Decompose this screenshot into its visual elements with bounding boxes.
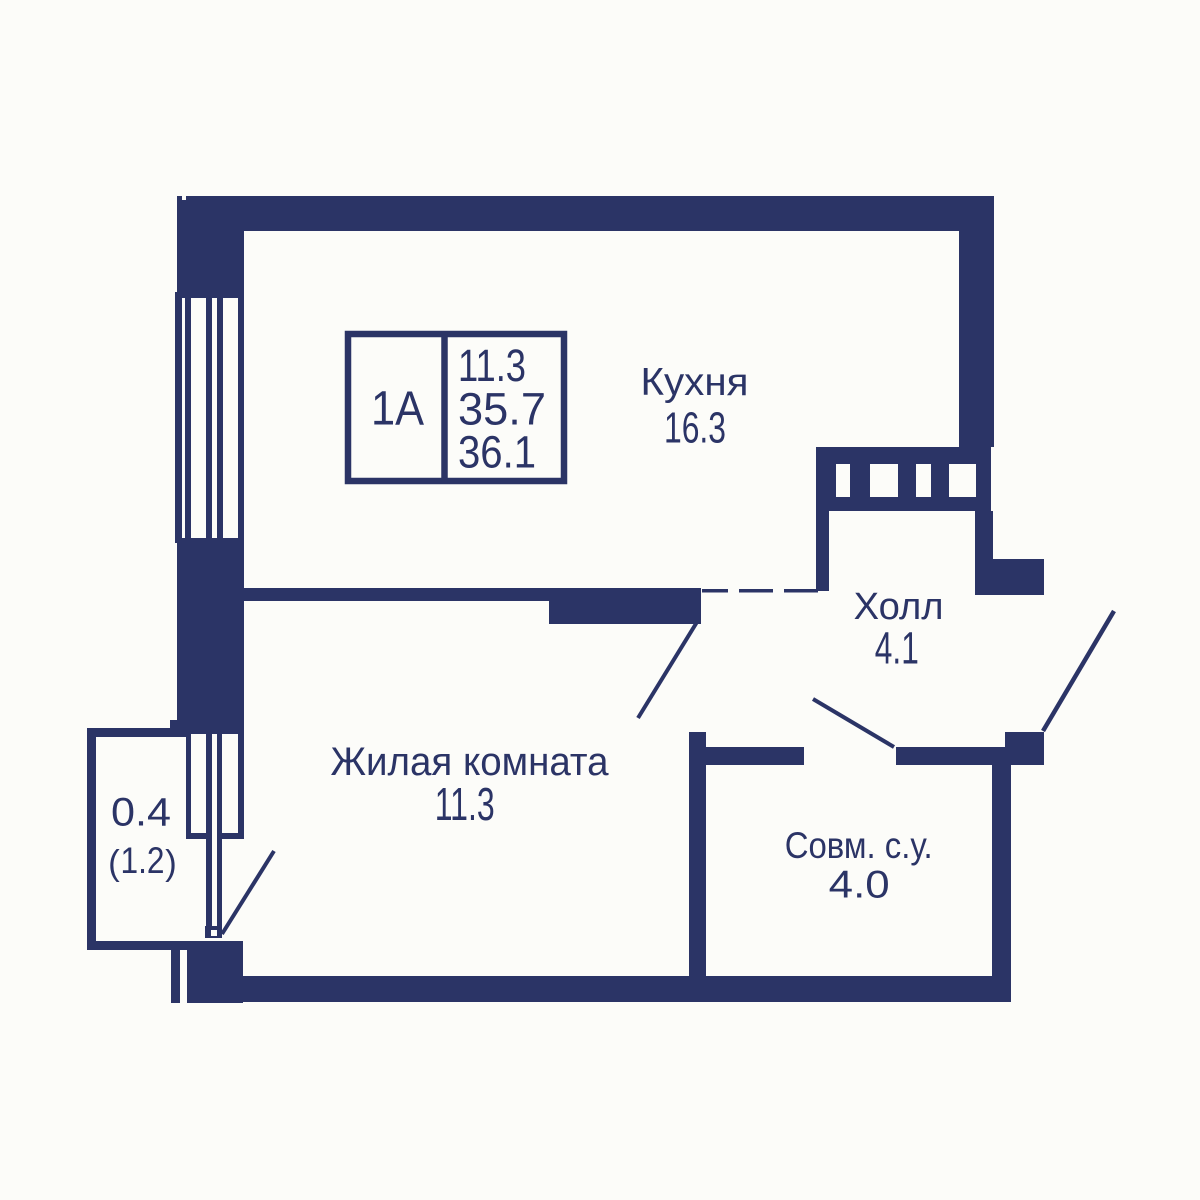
svg-text:4.0: 4.0	[829, 864, 890, 907]
svg-text:(: (	[108, 844, 120, 883]
svg-text:Кухня: Кухня	[641, 361, 749, 404]
svg-text:36.1: 36.1	[458, 426, 536, 477]
svg-text:11.3: 11.3	[435, 778, 495, 830]
svg-text:0.4: 0.4	[111, 791, 171, 835]
svg-text:1А: 1А	[371, 383, 424, 436]
svg-text:): )	[165, 844, 177, 883]
svg-text:Совм. с.у.: Совм. с.у.	[785, 824, 933, 866]
svg-text:16.3: 16.3	[664, 405, 726, 453]
svg-text:4.1: 4.1	[875, 623, 919, 674]
svg-text:1.2: 1.2	[121, 840, 165, 881]
